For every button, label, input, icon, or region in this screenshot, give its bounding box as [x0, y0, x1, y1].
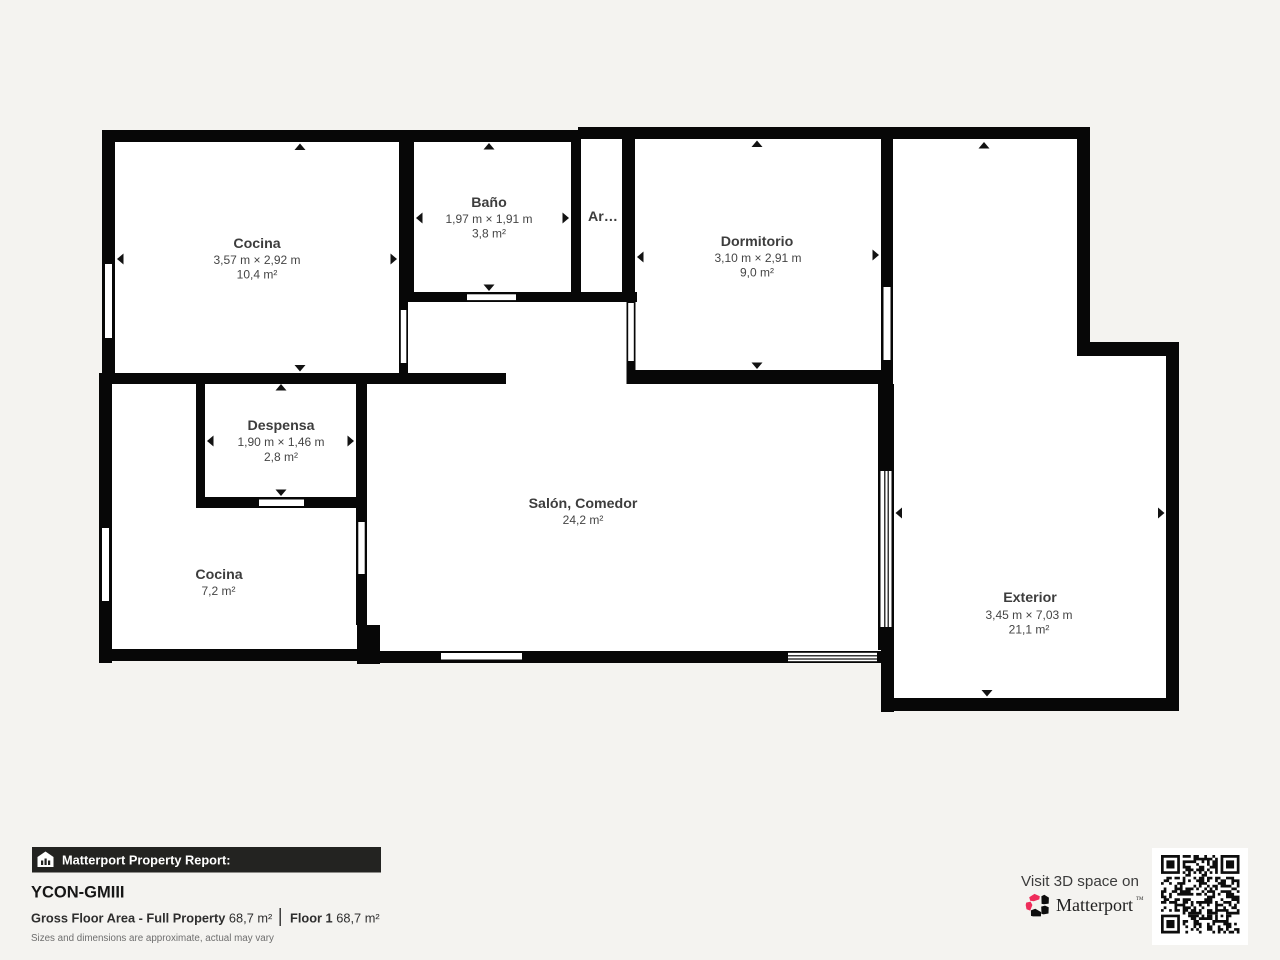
svg-text:Visit 3D space on: Visit 3D space on: [1021, 873, 1139, 890]
svg-text:10,4 m²: 10,4 m²: [237, 268, 278, 282]
svg-text:Cocina: Cocina: [233, 236, 280, 252]
svg-text:Sizes and dimensions are appro: Sizes and dimensions are approximate, ac…: [31, 933, 274, 944]
svg-text:24,2 m²: 24,2 m²: [563, 513, 604, 527]
svg-text:Exterior: Exterior: [1003, 590, 1057, 606]
svg-text:Cocina: Cocina: [195, 567, 242, 583]
svg-text:1,90 m × 1,46 m: 1,90 m × 1,46 m: [237, 435, 324, 449]
svg-text:Baño: Baño: [471, 195, 507, 211]
svg-text:21,1 m²: 21,1 m²: [1009, 623, 1050, 637]
svg-text:YCON-GMIII: YCON-GMIII: [31, 884, 125, 902]
svg-text:TM: TM: [1136, 897, 1144, 902]
svg-text:Dormitorio: Dormitorio: [721, 234, 794, 250]
svg-text:3,45 m × 7,03 m: 3,45 m × 7,03 m: [985, 608, 1072, 622]
svg-text:Floor 1 68,7 m²: Floor 1 68,7 m²: [290, 911, 380, 926]
svg-text:Ar…: Ar…: [588, 209, 618, 225]
svg-text:Matterport Property Report:: Matterport Property Report:: [62, 853, 231, 868]
svg-text:Salón, Comedor: Salón, Comedor: [529, 496, 638, 512]
svg-text:3,8 m²: 3,8 m²: [472, 227, 506, 241]
svg-text:3,10 m × 2,91 m: 3,10 m × 2,91 m: [714, 251, 801, 265]
svg-text:1,97 m × 1,91 m: 1,97 m × 1,91 m: [445, 212, 532, 226]
svg-text:Despensa: Despensa: [247, 418, 314, 434]
svg-text:Matterport: Matterport: [1056, 895, 1133, 915]
svg-text:2,8 m²: 2,8 m²: [264, 450, 298, 464]
svg-text:Gross Floor Area - Full Proper: Gross Floor Area - Full Property 68,7 m²: [31, 911, 273, 926]
svg-text:9,0 m²: 9,0 m²: [740, 266, 774, 280]
svg-text:7,2 m²: 7,2 m²: [201, 584, 235, 598]
svg-text:3,57 m × 2,92 m: 3,57 m × 2,92 m: [213, 253, 300, 267]
